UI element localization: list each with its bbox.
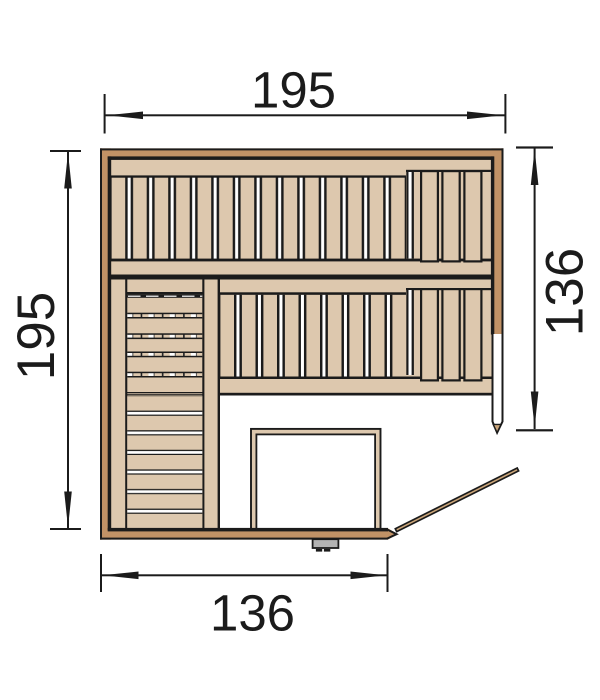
svg-text:195: 195: [7, 292, 66, 380]
svg-text:136: 136: [535, 248, 594, 336]
svg-text:195: 195: [251, 61, 336, 118]
svg-text:136: 136: [210, 585, 295, 642]
